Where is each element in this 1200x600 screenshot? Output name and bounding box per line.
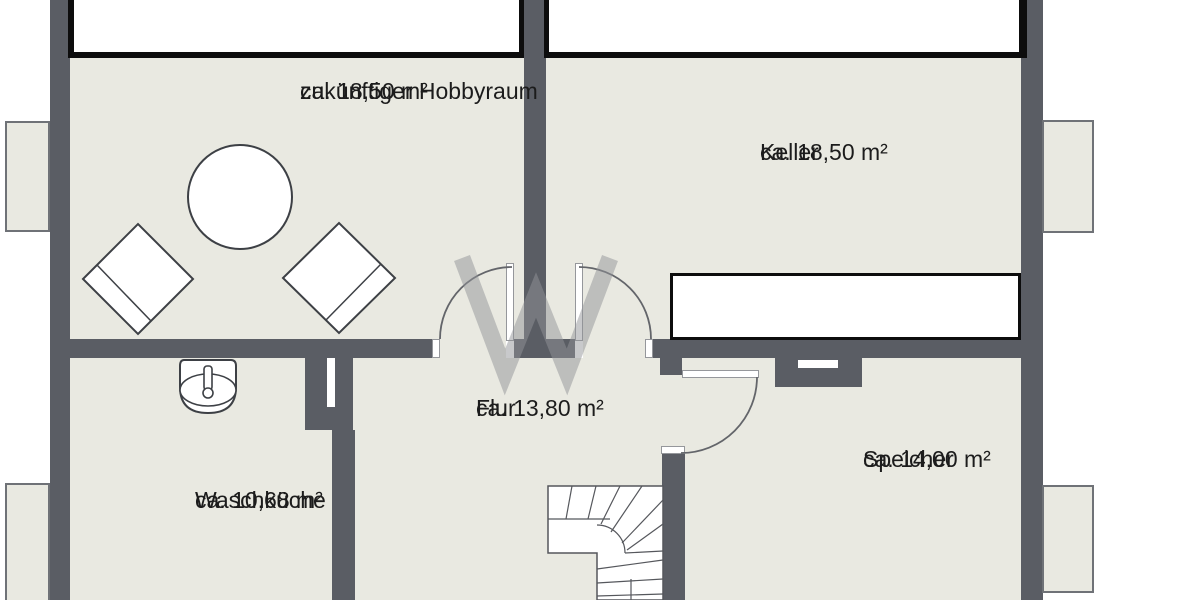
plan-symbols-layer <box>0 0 1200 600</box>
room-area: ca. 18,50 m² <box>300 77 428 106</box>
room-area: ca. 14,00 m² <box>863 445 991 474</box>
washbasin <box>180 360 236 413</box>
floor-plan: zukünftiger Hobbyraum ca. 18,50 m² Kelle… <box>0 0 1200 600</box>
room-area: ca. 10,68 m² <box>195 486 323 515</box>
round-table <box>188 145 292 249</box>
door-arc-speicher <box>681 377 757 453</box>
winder-staircase <box>548 486 663 600</box>
chair-right <box>283 223 395 333</box>
watermark <box>462 258 610 372</box>
chair-left <box>83 224 193 334</box>
room-area: ca. 13,80 m² <box>476 394 604 423</box>
room-area: ca. 18,50 m² <box>760 138 888 167</box>
